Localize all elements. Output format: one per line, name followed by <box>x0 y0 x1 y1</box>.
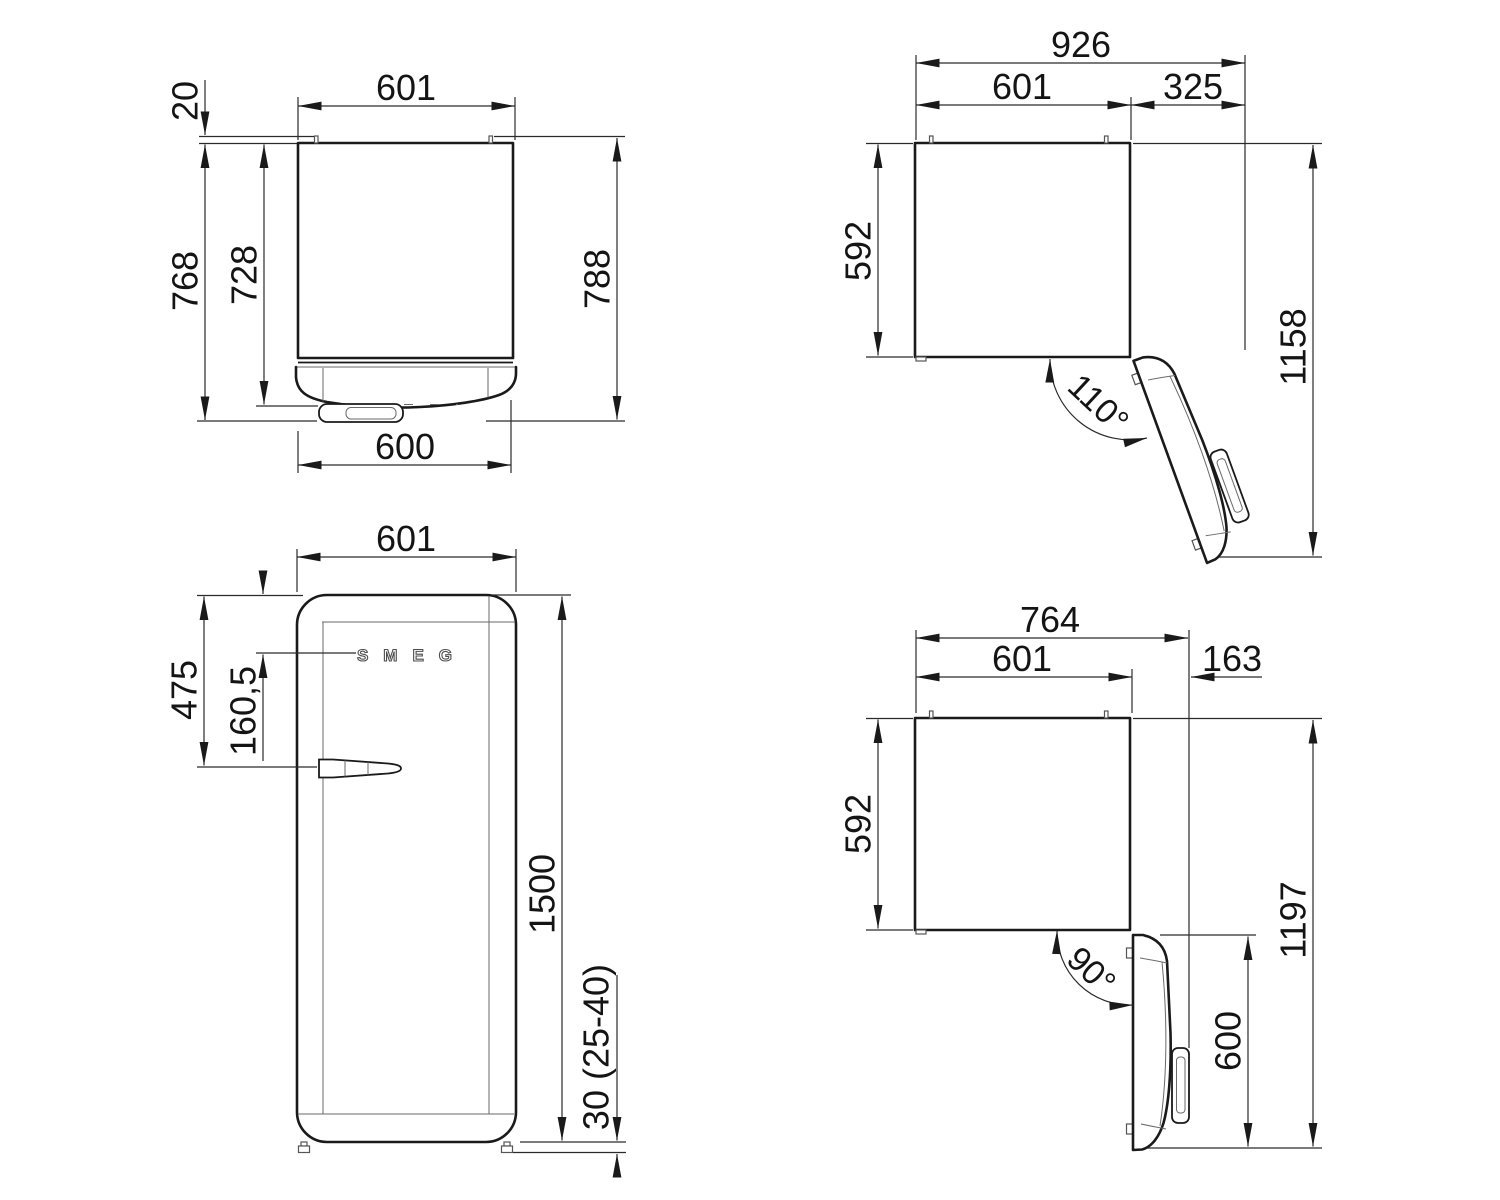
dim-handle-from-top: 475 <box>164 597 205 766</box>
dim-label: 592 <box>838 221 879 281</box>
dim-label: 20 <box>165 81 206 121</box>
dim-label: 601 <box>376 67 436 108</box>
dim-label: 475 <box>164 660 205 720</box>
hinge-pin <box>930 136 934 143</box>
dim-door-open-width: 600 <box>1208 937 1249 1147</box>
hinge-pin <box>489 136 493 143</box>
view-top-open-90: 764 601 163 592 1197 600 <box>838 599 1323 1150</box>
hinge-pin <box>315 136 319 143</box>
view-top-closed: 601 20 768 728 788 <box>165 67 626 473</box>
dim-depth-body: 728 <box>224 145 265 405</box>
dim-label: 325 <box>1163 66 1223 107</box>
dim-feet-height: 30 (25-40) <box>576 964 618 1170</box>
foot-left <box>299 1142 310 1153</box>
dim-width: 601 <box>297 518 516 592</box>
dim-label: 728 <box>224 245 265 305</box>
dim-door-clearance: 325 <box>1131 66 1245 107</box>
dim-cabinet-depth: 592 <box>838 145 879 356</box>
view-front: 601 SMEG 475 160,5 1500 <box>164 518 627 1170</box>
dim-label: 764 <box>1020 599 1080 640</box>
dimension-drawing: 601 20 768 728 788 <box>0 0 1500 1200</box>
dim-height: 1500 <box>522 597 563 1141</box>
door-open-90 <box>1127 935 1190 1150</box>
dim-label: 1197 <box>1273 881 1314 958</box>
view-top-open-110: 926 601 325 592 1158 110° <box>838 24 1323 565</box>
hinge-pin <box>1105 136 1109 143</box>
dim-label: 600 <box>375 426 435 467</box>
dim-depth-overall: 788 <box>577 138 618 420</box>
dim-door-clearance: 163 <box>1191 638 1262 679</box>
dim-label: 601 <box>376 518 436 559</box>
dim-label: 768 <box>165 251 206 311</box>
dim-cabinet-depth: 592 <box>838 720 879 929</box>
angle-label: 90° <box>1059 940 1123 1003</box>
cabinet-front <box>297 595 516 1142</box>
dim-label: 926 <box>1051 24 1111 65</box>
cabinet-body <box>298 143 513 358</box>
dim-width-top: 601 <box>298 67 515 140</box>
dim-overall-depth: 1197 <box>1273 720 1314 1147</box>
hinge-pin <box>930 711 934 718</box>
foot-base <box>502 1146 513 1153</box>
dim-cabinet-width: 601 <box>916 638 1132 713</box>
dim-label: 601 <box>992 638 1052 679</box>
dim-label: 30 (25-40) <box>576 964 617 1130</box>
foot-right <box>502 1142 513 1153</box>
dim-label: 1158 <box>1273 308 1314 385</box>
door-open-110 <box>1127 342 1259 565</box>
foot-mark <box>916 357 926 361</box>
hinge-pin <box>1105 711 1109 718</box>
cabinet-body <box>915 718 1130 930</box>
brand-logo: SMEG <box>357 646 467 665</box>
dim-depth-with-door: 768 <box>165 145 206 421</box>
dim-cabinet-width: 601 <box>916 66 1131 140</box>
cabinet-body <box>915 143 1130 357</box>
dim-label: 592 <box>838 794 879 854</box>
dim-label: 601 <box>992 66 1052 107</box>
dim-label: 788 <box>577 249 618 309</box>
foot-mark <box>916 930 926 934</box>
dim-label: 1500 <box>522 854 563 934</box>
foot-base <box>299 1146 310 1153</box>
dim-label: 160,5 <box>223 666 264 756</box>
angle-label: 110° <box>1060 367 1136 441</box>
dim-label: 600 <box>1208 1011 1249 1071</box>
dim-overall-depth: 1158 <box>1273 145 1314 556</box>
dim-hinge-protrusion: 20 <box>165 80 206 135</box>
dim-logo-from-top: 160,5 <box>223 575 264 761</box>
drawing-page: 601 20 768 728 788 <box>0 0 1500 1200</box>
door-curved-front <box>296 367 516 408</box>
dim-label: 163 <box>1202 638 1262 679</box>
